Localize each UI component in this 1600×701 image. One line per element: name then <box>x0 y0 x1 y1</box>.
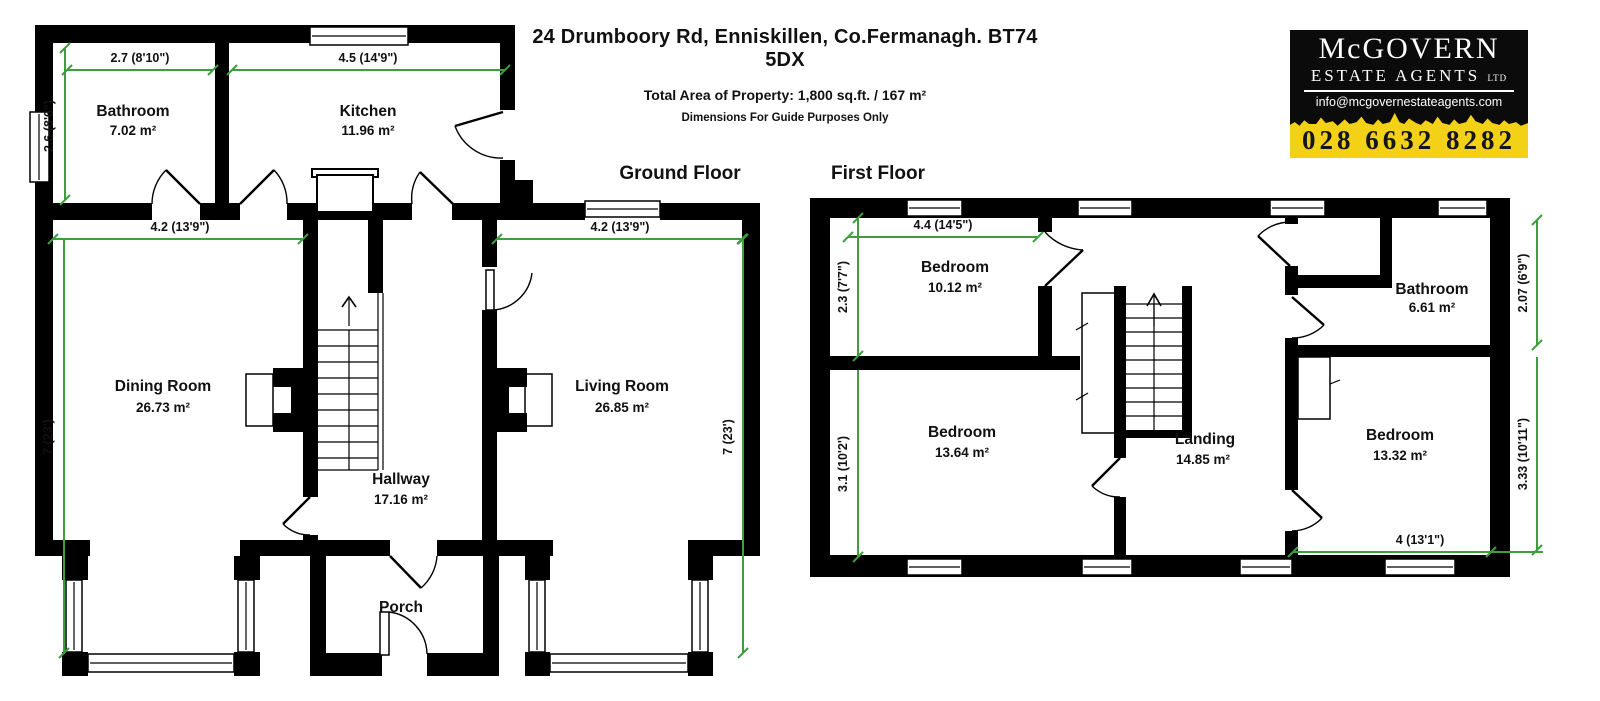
room-area-kitchen: 11.96 m² <box>341 123 395 138</box>
chimney <box>312 169 378 212</box>
dim-bedroom3-width: 4 (13'1") <box>1396 533 1445 547</box>
first-floor-windows <box>907 200 1487 575</box>
ground-floor-labels: Ground Floor Bathroom 7.02 m² Kitchen 11… <box>96 103 741 616</box>
dim-dining-depth: 7 (23') <box>41 419 55 455</box>
room-label-landing: Landing <box>1175 431 1235 448</box>
ground-floor-title: Ground Floor <box>619 163 741 184</box>
room-label-bedroom2: Bedroom <box>928 424 996 441</box>
dim-bedroom2-depth: 3.1 (10'2') <box>836 436 850 492</box>
room-label-hallway: Hallway <box>372 471 430 488</box>
dim-living-depth: 7 (23') <box>721 419 735 455</box>
dim-dining-width: 4.2 (13'9") <box>151 220 210 234</box>
ground-floor-stairs <box>318 293 383 470</box>
room-label-dining: Dining Room <box>115 378 211 395</box>
first-floor-title: First Floor <box>831 163 926 184</box>
dim-bedroom1-depth: 2.3 (7'7") <box>836 261 850 313</box>
floorplan-page: 24 Drumboory Rd, Enniskillen, Co.Fermana… <box>0 0 1600 701</box>
room-area-landing: 14.85 m² <box>1176 452 1231 467</box>
dim-bedroom3-depth: 3.33 (10'11") <box>1516 418 1530 490</box>
room-area-bathroom-ff: 6.61 m² <box>1409 300 1456 315</box>
room-area-bedroom2: 13.64 m² <box>935 445 990 460</box>
closet <box>1298 357 1330 419</box>
first-floor-plan: 4.4 (14'5") 2.3 (7'7") 3.1 (10'2') 2.07 … <box>810 163 1543 577</box>
room-label-bedroom3: Bedroom <box>1366 427 1434 444</box>
ground-floor-plan: 2.7 (8'10") 4.5 (14'9") 2.6 (8'6") 4.2 (… <box>30 25 760 676</box>
room-label-kitchen: Kitchen <box>340 103 397 120</box>
room-label-bathroom-ff: Bathroom <box>1395 281 1468 298</box>
room-label-bathroom: Bathroom <box>96 103 169 120</box>
floorplan-drawing: 2.7 (8'10") 4.5 (14'9") 2.6 (8'6") 4.2 (… <box>0 0 1600 701</box>
dim-bathroom-depth: 2.6 (8'6") <box>42 100 56 152</box>
room-area-bedroom3: 13.32 m² <box>1373 448 1428 463</box>
room-area-dining: 26.73 m² <box>136 400 191 415</box>
dim-bathroom-width: 2.7 (8'10") <box>111 51 170 65</box>
room-label-living: Living Room <box>575 378 669 395</box>
room-label-porch: Porch <box>379 599 423 616</box>
dim-bathroom-depth-ff: 2.07 (6'9") <box>1516 254 1530 313</box>
dim-living-width: 4.2 (13'9") <box>591 220 650 234</box>
room-label-bedroom1: Bedroom <box>921 259 989 276</box>
room-area-bathroom: 7.02 m² <box>110 123 157 138</box>
room-area-bedroom1: 10.12 m² <box>928 280 983 295</box>
dim-kitchen-width: 4.5 (14'9") <box>339 51 398 65</box>
stair-railing <box>1082 293 1117 433</box>
room-area-hallway: 17.16 m² <box>374 492 429 507</box>
room-area-living: 26.85 m² <box>595 400 650 415</box>
dim-bedroom1-width: 4.4 (14'5") <box>914 218 973 232</box>
